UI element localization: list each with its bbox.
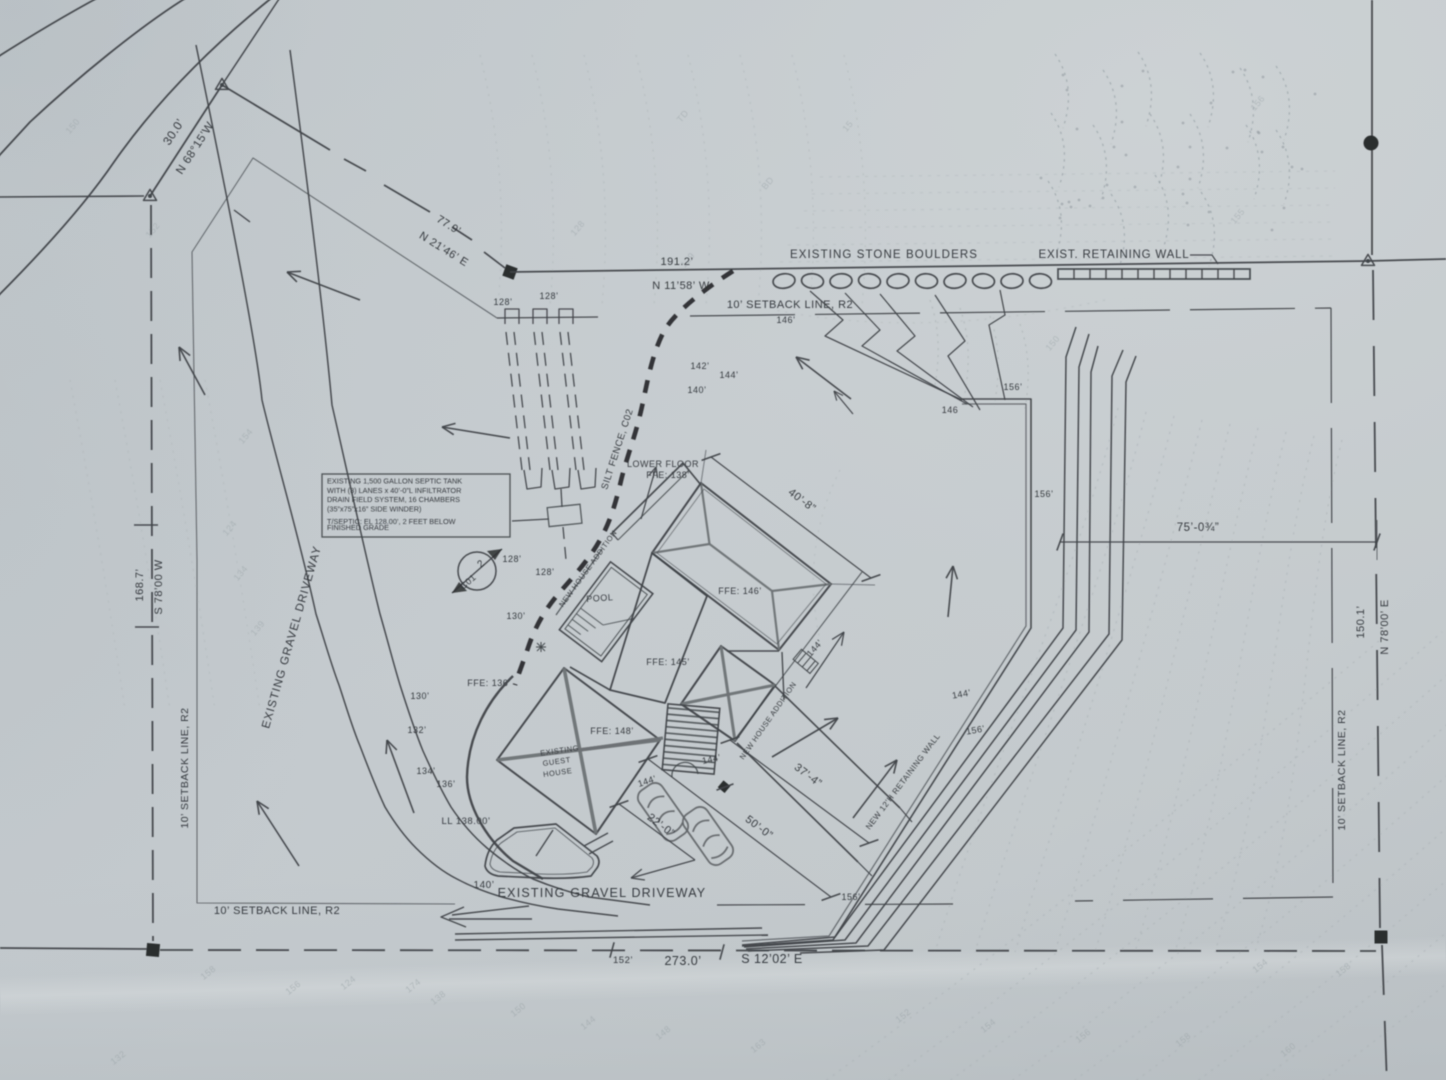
svg-text:156’: 156’: [1034, 489, 1053, 499]
svg-text:128’: 128’: [502, 554, 521, 564]
svg-text:75’-0¾”: 75’-0¾”: [1177, 522, 1220, 534]
svg-text:132’: 132’: [407, 725, 426, 735]
svg-text:S 78’00 W: S 78’00 W: [153, 559, 165, 614]
svg-text:128’: 128’: [493, 297, 512, 307]
svg-text:FINISHED GRADE: FINISHED GRADE: [327, 523, 389, 532]
svg-text:128’: 128’: [535, 567, 554, 577]
svg-text:POOL: POOL: [586, 592, 614, 604]
svg-text:136’: 136’: [436, 779, 455, 789]
svg-text:LOWER FLOOR: LOWER FLOOR: [627, 459, 699, 469]
svg-text:152’: 152’: [613, 955, 633, 966]
svg-text:134’: 134’: [416, 766, 435, 776]
svg-text:128’: 128’: [539, 291, 558, 301]
svg-text:N 11’58’ W: N 11’58’ W: [652, 280, 710, 292]
svg-text:140’: 140’: [687, 385, 706, 395]
svg-text:191.2’: 191.2’: [661, 256, 694, 268]
svg-text:273.0’: 273.0’: [664, 954, 701, 968]
svg-text:EXIST. RETAINING WALL: EXIST. RETAINING WALL: [1039, 249, 1190, 261]
svg-text:140’: 140’: [474, 880, 495, 891]
svg-text:EXISTING 1,500 GALLON SEPTIC T: EXISTING 1,500 GALLON SEPTIC TANK: [327, 477, 462, 486]
svg-text:EXISTING STONE BOULDERS: EXISTING STONE BOULDERS: [790, 249, 978, 261]
svg-text:130’: 130’: [506, 611, 525, 621]
svg-text:10’ SETBACK LINE, R2: 10’ SETBACK LINE, R2: [179, 707, 191, 828]
svg-text:DRAIN FIELD SYSTEM, 16 CHAMBER: DRAIN FIELD SYSTEM, 16 CHAMBERS: [327, 495, 460, 504]
svg-text:144’: 144’: [719, 370, 738, 380]
svg-text:FFE: 146’: FFE: 146’: [718, 586, 762, 596]
svg-text:10’ SETBACK LINE, R2: 10’ SETBACK LINE, R2: [1336, 709, 1348, 830]
svg-text:S 12’02’ E: S 12’02’ E: [741, 952, 803, 966]
svg-text:EXISTING GRAVEL DRIVEWAY: EXISTING GRAVEL DRIVEWAY: [498, 886, 707, 900]
svg-text:130’: 130’: [410, 691, 429, 701]
svg-text:156’: 156’: [1003, 382, 1022, 392]
svg-text:168.7’: 168.7’: [134, 569, 146, 602]
svg-text:10’ SETBACK LINE, R2: 10’ SETBACK LINE, R2: [727, 299, 853, 311]
svg-text:10’ SETBACK LINE, R2: 10’ SETBACK LINE, R2: [214, 905, 340, 917]
svg-text:N 78’00’ E: N 78’00’ E: [1379, 599, 1391, 654]
svg-text:146’: 146’: [776, 315, 795, 325]
svg-text:142’: 142’: [690, 361, 709, 371]
svg-text:150.1’: 150.1’: [1355, 606, 1367, 639]
svg-text:FFE: 145’: FFE: 145’: [646, 657, 690, 667]
svg-text:(35”x75”x16” SIDE WINDER): (35”x75”x16” SIDE WINDER): [327, 504, 421, 513]
svg-text:WITH (3) LANES x 40’-0”L INFIL: WITH (3) LANES x 40’-0”L INFILTRATOR: [327, 486, 461, 495]
svg-text:146: 146: [942, 405, 959, 415]
svg-text:FFE: 148’: FFE: 148’: [590, 726, 634, 736]
